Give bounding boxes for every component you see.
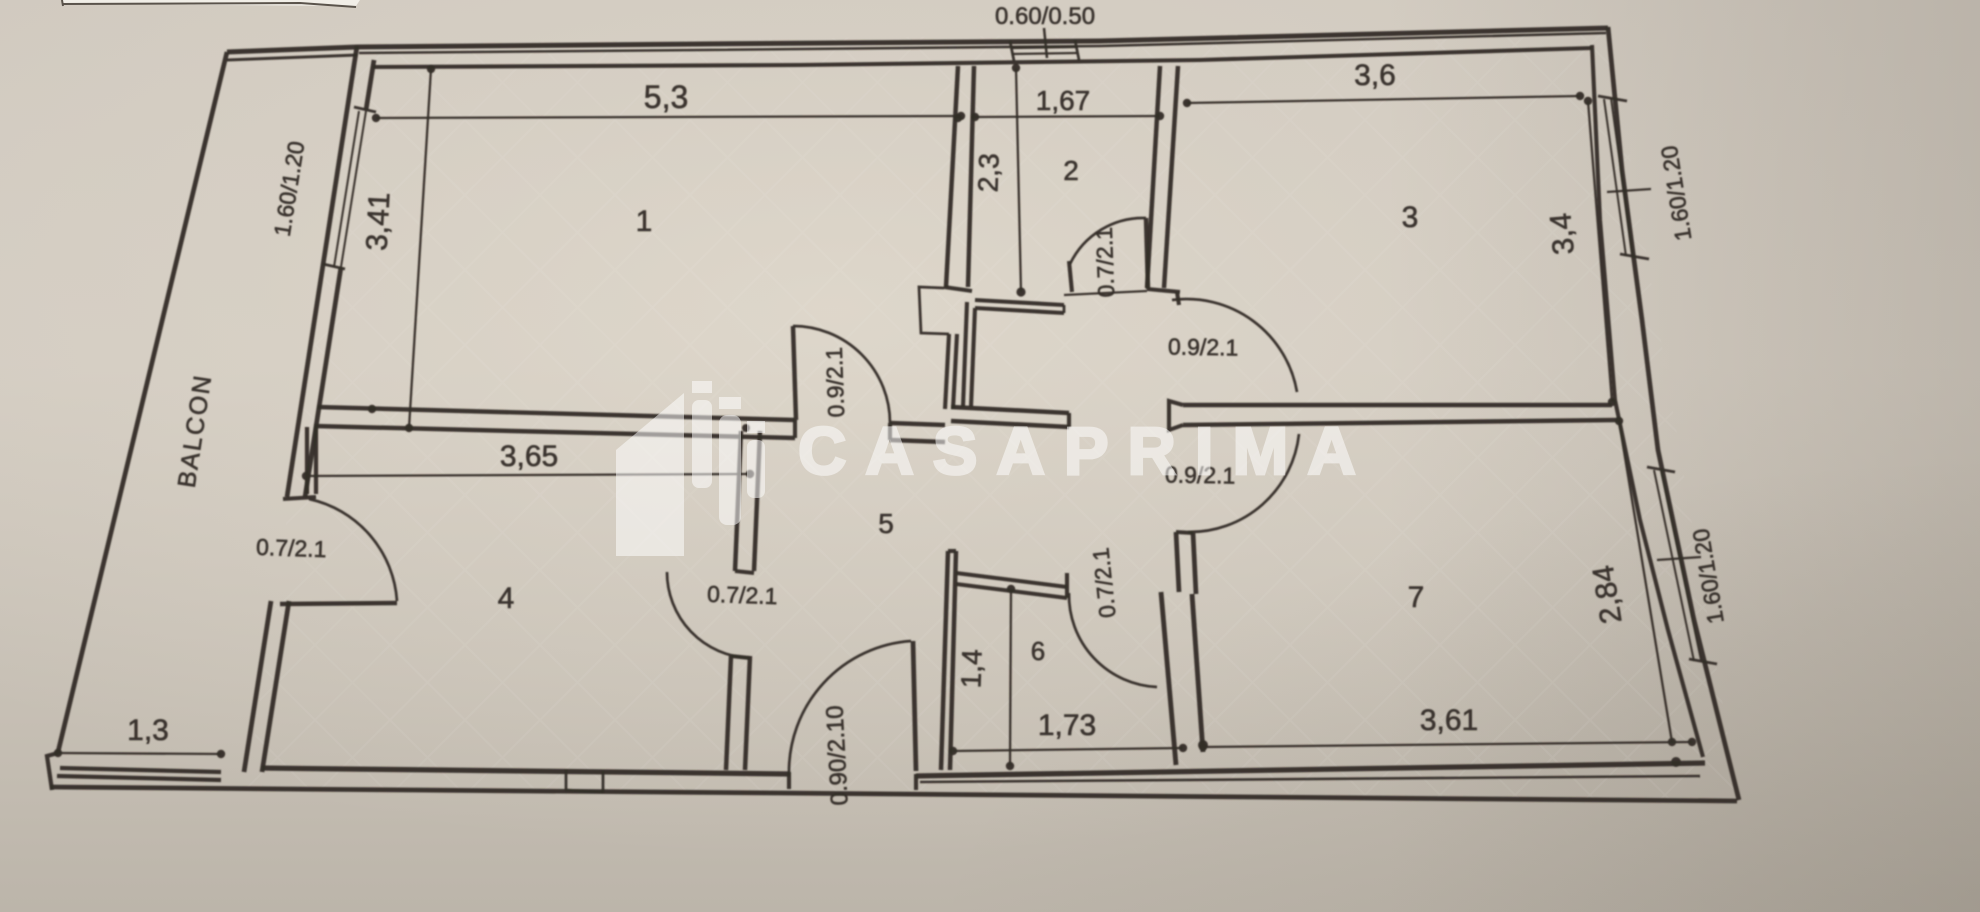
svg-text:3,61: 3,61: [1420, 704, 1478, 737]
svg-text:0.7/2.1: 0.7/2.1: [1091, 227, 1119, 298]
svg-text:4: 4: [498, 582, 515, 615]
svg-text:0.7/2.1: 0.7/2.1: [256, 534, 327, 562]
svg-text:5: 5: [878, 508, 894, 539]
svg-text:3,4: 3,4: [1544, 212, 1581, 256]
svg-text:1,73: 1,73: [1038, 709, 1096, 742]
svg-text:7: 7: [1408, 581, 1425, 614]
svg-text:1,4: 1,4: [955, 649, 987, 689]
svg-text:0.60/0.50: 0.60/0.50: [995, 3, 1095, 30]
svg-text:1,67: 1,67: [1036, 85, 1091, 116]
svg-text:2: 2: [1063, 155, 1079, 186]
svg-text:1,3: 1,3: [127, 714, 169, 747]
svg-text:6: 6: [1031, 636, 1045, 666]
svg-text:3,6: 3,6: [1354, 59, 1396, 92]
svg-text:0.9/2.1: 0.9/2.1: [821, 347, 849, 418]
svg-text:3: 3: [1402, 201, 1419, 234]
svg-text:1: 1: [636, 205, 653, 238]
svg-text:5,3: 5,3: [644, 79, 688, 115]
svg-text:0.90/2.10: 0.90/2.10: [821, 705, 853, 806]
svg-text:3,65: 3,65: [500, 440, 558, 473]
svg-text:0.9/2.1: 0.9/2.1: [1168, 333, 1239, 360]
svg-text:0.7/2.1: 0.7/2.1: [707, 581, 778, 609]
svg-text:2,3: 2,3: [972, 153, 1004, 193]
svg-text:CASAPRIMA: CASAPRIMA: [798, 414, 1375, 489]
svg-text:3,41: 3,41: [361, 191, 397, 251]
